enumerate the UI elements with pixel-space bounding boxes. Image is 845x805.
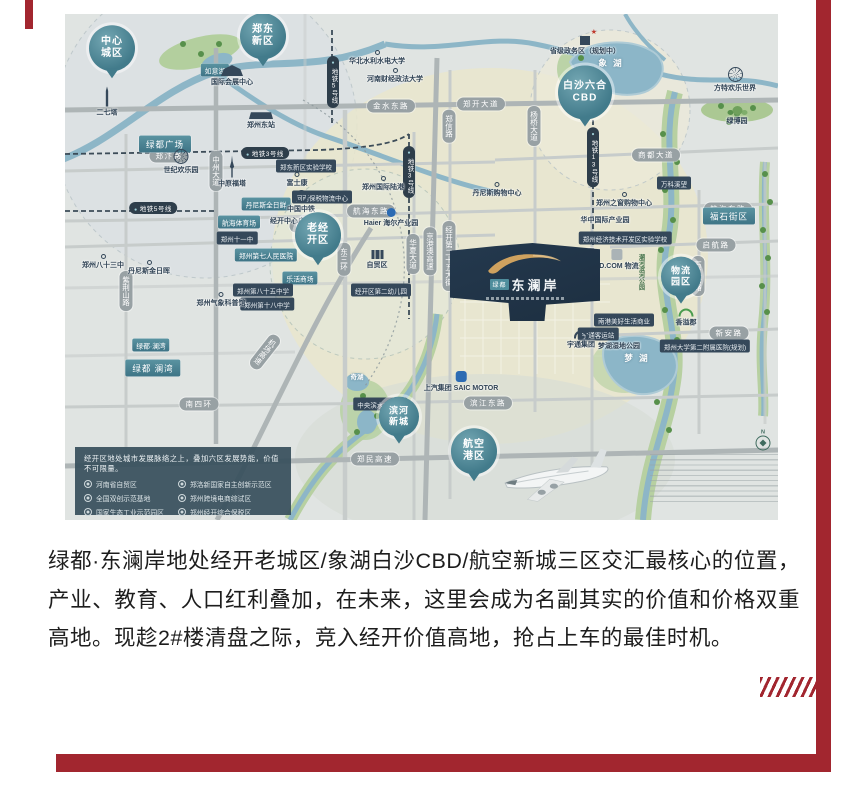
legend-item-label: 郑州经开综合保税区 [190, 507, 251, 517]
poi-icon [147, 260, 152, 265]
poi-label-dark: 经开区第二幼儿园 [351, 284, 411, 297]
poi-icon [103, 87, 112, 107]
landmark-label: 丹尼斯金日晖 [128, 266, 170, 276]
poi-label-dark: 郑州十一中 [217, 232, 258, 245]
landmark: 方特欢乐世界 [714, 67, 756, 93]
poi-icon [375, 50, 380, 55]
landmark-label: 香溢郡 [676, 318, 697, 328]
landmark-label: 郑州之窗购物中心 [596, 198, 652, 208]
poi-label-dark: 郑州经济技术开发区实验学校 [579, 232, 672, 245]
poi-icon [622, 192, 627, 197]
poi-icon [295, 190, 308, 203]
poi-label-dark: 郑东新区实验学校 [276, 160, 336, 173]
landmark: Haier 海尔产业园 [364, 208, 418, 228]
pin-tail [256, 56, 270, 73]
road-label: 紫荆山路 [120, 271, 133, 311]
road-label: 启航路 [697, 239, 736, 252]
legend-item: 全国双创示范基地 [84, 493, 164, 503]
airplane-illustration [497, 442, 619, 506]
landmark: 上汽集团 SAIC MOTOR [424, 371, 499, 393]
compass-icon: N [756, 430, 771, 451]
badge-icon [178, 508, 186, 516]
landmark-label: 宇通集团 [567, 340, 595, 350]
poi-label-dark: 万科溪望 [657, 177, 691, 190]
landmark: JD.COM 物流 [595, 249, 638, 271]
compass-ring [756, 436, 771, 451]
waterbody-label: 梦 湖 [624, 352, 649, 364]
landmark: 丹尼斯金日晖 [128, 260, 170, 276]
red-frame-right [816, 0, 831, 761]
poi-label-teal: 航海体育场 [218, 216, 260, 229]
district-pin: 中心 城区 [89, 25, 135, 85]
landmark: 华中国际产业园 [581, 215, 630, 225]
landmark: 华北水利水电大学 [349, 50, 405, 66]
district-pin: 航空 港区 [451, 428, 497, 488]
road-label: 郑信路 [443, 110, 456, 143]
pin-tail [105, 68, 119, 85]
landmark-label: 河南财经政法大学 [367, 74, 423, 84]
landmark: 香溢郡 [676, 309, 697, 328]
landmark: 宇通集团 [567, 331, 595, 350]
logo-subtitle-line [486, 297, 564, 300]
pin-tail [311, 255, 325, 272]
poi-icon [580, 36, 590, 45]
metro-line-label: 地铁5号线 [129, 202, 177, 214]
pin-label: 郑东 新区 [252, 24, 274, 48]
pin-circle: 航空 港区 [451, 428, 497, 474]
legend-title: 经开区地处城市发展脉络之上，叠加六区发展势能，价值不可限量。 [84, 454, 282, 474]
legend-column-left: 河南省自贸区全国双创示范基地国家生态工业示范园区 [84, 479, 164, 517]
landmark-label: JD.COM 物流 [595, 261, 638, 271]
road-label: 郑开大道 [457, 98, 505, 111]
poi-icon [227, 156, 237, 178]
poi-icon [381, 176, 386, 181]
legend-item: 郑州经开综合保税区 [178, 507, 272, 517]
landmark-label: 梦湖湿地公园 [598, 341, 640, 351]
landmark: 梦湖湿地公园 [598, 341, 640, 351]
badge-icon [178, 480, 186, 488]
poi-label-teal: 绿都·澜湾 [132, 339, 169, 352]
poi-label-dark: 南港美好生活商业 [594, 314, 654, 327]
landmark-label: 绿博园 [727, 116, 748, 126]
landmark: 中国中铁 [287, 190, 315, 214]
poi-icon [174, 149, 189, 164]
poi-icon [101, 254, 106, 259]
pin-tail [467, 471, 481, 488]
landmark: 省级政务区（规划中） [550, 36, 620, 56]
legend-item-label: 国家生态工业示范园区 [96, 507, 164, 517]
pin-circle: 中心 城区 [89, 25, 135, 71]
landmark-label: 中原福塔 [218, 179, 246, 189]
pin-tail [392, 434, 406, 451]
location-map: 绿都 东澜岸 经开区地处城市发展脉络之上，叠加六区发展势能，价值不可限量。 河南… [65, 14, 778, 520]
badge-icon [178, 494, 186, 502]
badge-icon [84, 508, 92, 516]
poi-label-dark: 郑州大学第二附属医院(规划) [660, 340, 750, 353]
brand-chip: 绿都 [490, 279, 508, 290]
pin-label: 中心 城区 [101, 36, 123, 60]
district-pin: 白沙六合 CBD [558, 66, 612, 134]
landmark: 自贸区 [367, 250, 388, 270]
gold-wave-icon [482, 250, 568, 274]
legend-column-right: 郑洛新国家自主创新示范区郑州跨境电商综试区郑州经开综合保税区 [178, 479, 272, 517]
legend-item: 河南省自贸区 [84, 479, 164, 489]
poi-label-teal: 绿都 澜湾 [125, 360, 180, 377]
road-label: 金水东路 [367, 100, 415, 113]
pin-circle: 白沙六合 CBD [558, 66, 612, 120]
pin-label: 航空 港区 [463, 439, 485, 463]
landmark-label: 富士康 [287, 178, 308, 188]
legend-item-label: 郑州跨境电商综试区 [190, 493, 251, 503]
district-pin: 郑东 新区 [240, 14, 286, 73]
road-label: 华夏大道 [407, 234, 420, 274]
poi-icon [387, 208, 396, 217]
road-label: 京港澳高速 [424, 227, 437, 275]
landmark-label: 方特欢乐世界 [714, 83, 756, 93]
landmark: 郑州国际陆港 [362, 176, 404, 192]
red-frame-bottom [56, 754, 831, 772]
poi-icon [393, 68, 398, 73]
poi-icon [219, 292, 224, 297]
pin-circle: 物流 园区 [661, 257, 701, 297]
road-label: 南四环 [180, 398, 219, 411]
landmark-label: 世纪欢乐园 [164, 165, 199, 175]
metro-line-label: 地铁3号线 [241, 147, 289, 159]
poi-icon [249, 110, 273, 119]
poi-icon [574, 331, 588, 339]
landmark: 郑州八十三中 [82, 254, 124, 270]
poi-icon [455, 371, 466, 382]
pin-tail [578, 117, 592, 134]
metro-line-label: 地铁3号线 [403, 146, 415, 198]
road-label: 滨江东路 [464, 397, 512, 410]
district-pin: 滨河 新城 [379, 397, 419, 451]
pin-label: 老经 开区 [307, 223, 329, 247]
landmark-label: 丹尼斯购物中心 [473, 188, 522, 198]
map-disclaimer-textblock [650, 454, 778, 506]
legend-item-label: 河南省自贸区 [96, 479, 137, 489]
pin-circle: 滨河 新城 [379, 397, 419, 437]
landmark-label: 华中国际产业园 [581, 215, 630, 225]
landmark-label: 国际会展中心 [211, 77, 253, 87]
legend-item-label: 郑洛新国家自主创新示范区 [190, 479, 272, 489]
metro-line-label: 地铁13号线 [587, 127, 599, 187]
pin-tail [674, 294, 688, 311]
pin-label: 滨河 新城 [389, 406, 409, 428]
landmark: 河南财经政法大学 [367, 68, 423, 84]
road-label: 新安路 [710, 327, 749, 340]
poi-icon [295, 172, 300, 177]
landmark: 郑州之窗购物中心 [596, 192, 652, 208]
road-label: 商都大道 [632, 149, 680, 162]
poi-label-teal: 郑州第七人民医院 [235, 249, 297, 262]
landmark-label: 华北水利水电大学 [349, 56, 405, 66]
landmark-label: 郑州八十三中 [82, 260, 124, 270]
landmark: 中原福塔 [218, 156, 246, 189]
district-pin: 物流 园区 [661, 257, 701, 311]
landmark-label: Haier 海尔产业园 [364, 218, 418, 228]
landmark-label: 郑州气象科普馆 [197, 298, 246, 308]
legend-item: 国家生态工业示范园区 [84, 507, 164, 517]
pin-label: 物流 园区 [671, 266, 691, 288]
badge-icon [84, 494, 92, 502]
description-paragraph: 绿都·东澜岸地处经开老城区/象湖白沙CBD/航空新城三区交汇最核心的位置，产业、… [48, 542, 800, 658]
district-pin: 老经 开区 [295, 212, 341, 272]
red-frame-top-left [25, 0, 33, 29]
pin-label: 白沙六合 CBD [563, 81, 607, 105]
badge-icon [84, 480, 92, 488]
project-name: 东澜岸 [512, 275, 560, 294]
landmark-label: 自贸区 [367, 260, 388, 270]
legend-item: 郑州跨境电商综试区 [178, 493, 272, 503]
poi-label-dark: 郑州第十八中学 [240, 298, 294, 311]
legend-item: 郑洛新国家自主创新示范区 [178, 479, 272, 489]
landmark: 丹尼斯购物中心 [473, 182, 522, 198]
road-label: 郑民高速 [351, 453, 399, 466]
legend-item-label: 全国双创示范基地 [96, 493, 150, 503]
metro-line-label: 地铁5号线 [327, 56, 339, 108]
pin-circle: 老经 开区 [295, 212, 341, 258]
landmark: 二七塔 [97, 87, 118, 118]
poi-icon [495, 182, 500, 187]
landmark: 郑州气象科普馆 [197, 292, 246, 308]
landmark-label: 二七塔 [97, 108, 118, 118]
poi-icon [611, 249, 622, 260]
landmark: 绿博园 [727, 106, 748, 126]
poi-icon [732, 106, 742, 115]
page-canvas: 绿都 东澜岸 经开区地处城市发展脉络之上，叠加六区发展势能，价值不可限量。 河南… [0, 0, 845, 805]
landmark: 富士康 [287, 172, 308, 188]
waterbody-label: 奇湖 [351, 371, 364, 381]
landmark-label: 郑州东站 [247, 120, 275, 130]
map-legend: 经开区地处城市发展脉络之上，叠加六区发展势能，价值不可限量。 河南省自贸区全国双… [75, 447, 291, 515]
landmark-label: 郑州国际陆港 [362, 182, 404, 192]
red-hatch-decoration [760, 677, 818, 697]
landmark: 世纪欢乐园 [164, 149, 199, 175]
poi-icon [728, 67, 743, 82]
landmark-label: 上汽集团 SAIC MOTOR [424, 383, 499, 393]
poi-icon [371, 250, 383, 259]
landmark: 郑州东站 [247, 110, 275, 130]
pin-circle: 郑东 新区 [240, 14, 286, 59]
road-label: 杨桥大道 [528, 106, 541, 146]
poi-label-teal: 福石街区 [703, 208, 755, 225]
landmark-label: 省级政务区（规划中） [550, 46, 620, 56]
poi-label-teal: 丹尼斯全日鲜 [242, 198, 291, 211]
